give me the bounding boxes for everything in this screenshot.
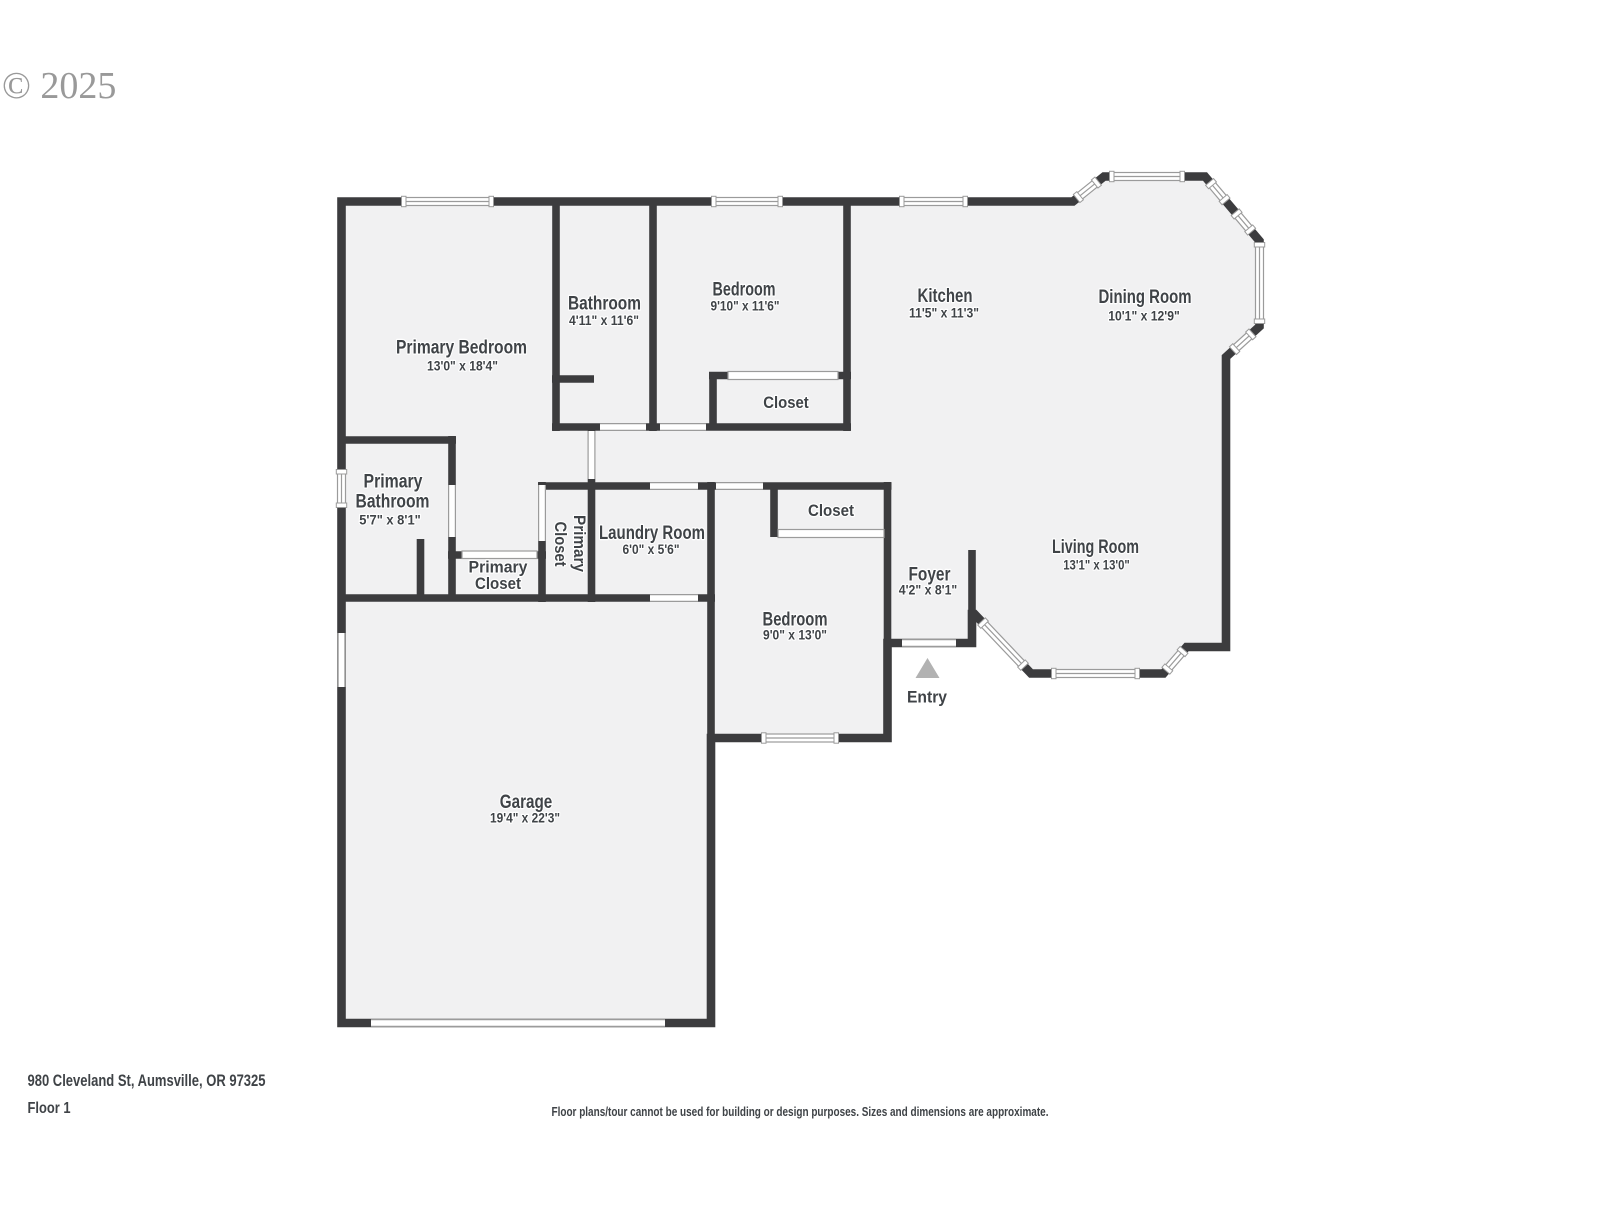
svg-text:11'5" x 11'3": 11'5" x 11'3" [909,306,979,321]
svg-text:19'4" x 22'3": 19'4" x 22'3" [490,811,560,826]
svg-text:© 2025: © 2025 [2,65,116,107]
svg-text:Kitchen: Kitchen [918,286,973,307]
svg-text:Closet: Closet [551,522,569,567]
svg-text:Primary Bedroom: Primary Bedroom [396,338,527,359]
svg-text:9'10" x 11'6": 9'10" x 11'6" [711,299,780,314]
svg-text:10'1" x 12'9": 10'1" x 12'9" [1108,309,1180,324]
svg-text:6'0" x 5'6": 6'0" x 5'6" [623,542,680,557]
svg-text:9'0" x 13'0": 9'0" x 13'0" [763,628,827,643]
svg-text:Bedroom: Bedroom [713,280,776,301]
svg-text:Bathroom: Bathroom [568,294,641,315]
svg-text:Bathroom: Bathroom [356,492,430,513]
svg-text:4'2" x 8'1": 4'2" x 8'1" [899,583,958,598]
svg-text:Dining Room: Dining Room [1099,287,1192,308]
svg-text:Closet: Closet [808,502,854,520]
svg-text:13'1" x 13'0": 13'1" x 13'0" [1063,558,1130,573]
svg-text:Closet: Closet [475,575,521,593]
svg-text:Primary: Primary [364,472,423,493]
svg-text:980 Cleveland St, Aumsville, O: 980 Cleveland St, Aumsville, OR 97325 [28,1071,266,1090]
svg-text:Primary: Primary [570,515,588,573]
svg-text:4'11" x 11'6": 4'11" x 11'6" [569,313,639,328]
svg-text:Closet: Closet [763,394,809,412]
svg-text:Floor 1: Floor 1 [28,1100,71,1117]
svg-text:Entry: Entry [907,688,947,707]
svg-text:5'7" x 8'1": 5'7" x 8'1" [359,513,421,528]
svg-text:Laundry Room: Laundry Room [599,523,705,544]
svg-text:13'0" x 18'4": 13'0" x 18'4" [427,359,498,374]
svg-text:Primary: Primary [469,559,529,577]
svg-text:Floor plans/tour cannot be use: Floor plans/tour cannot be used for buil… [552,1104,1049,1119]
svg-text:Living Room: Living Room [1052,537,1139,558]
